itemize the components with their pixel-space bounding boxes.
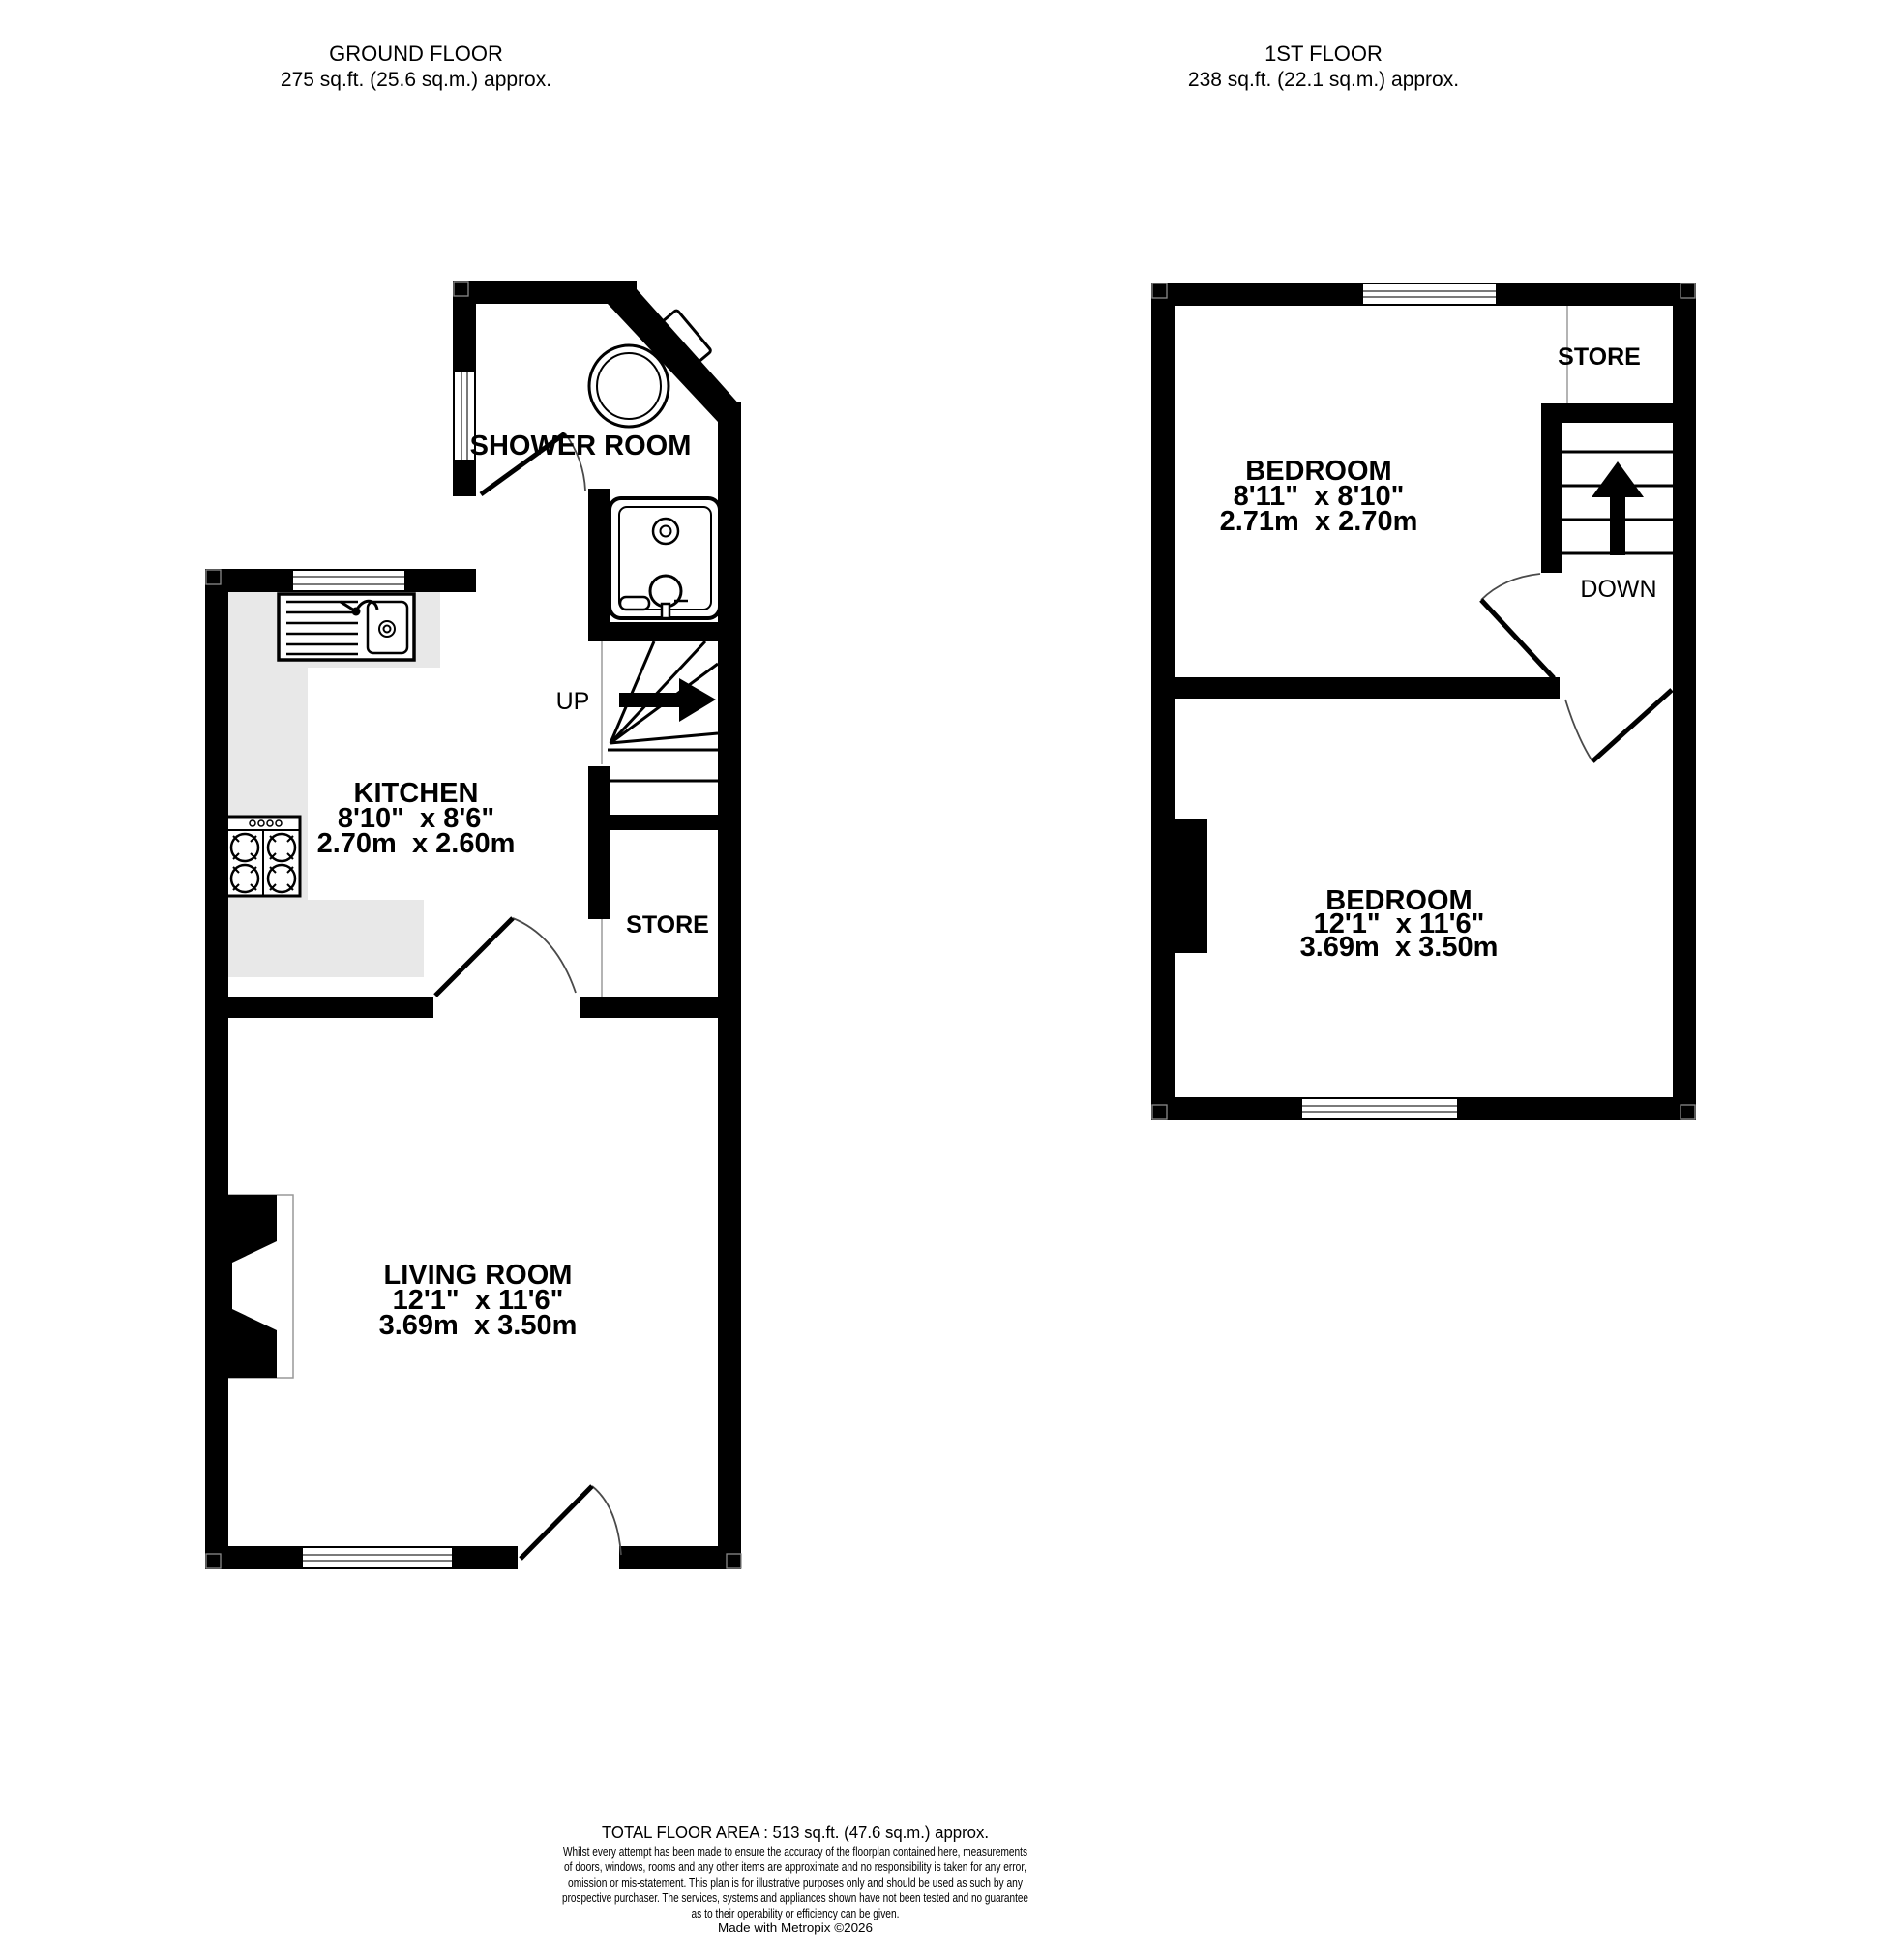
kitchen-living-door bbox=[435, 918, 576, 996]
disclaimer-line-2: of doors, windows, rooms and any other i… bbox=[564, 1860, 1026, 1874]
floorplan-canvas: GROUND FLOOR 275 sq.ft. (25.6 sq.m.) app… bbox=[0, 0, 1904, 1935]
first-floor-windows bbox=[1302, 284, 1496, 1118]
front-door bbox=[521, 1486, 621, 1559]
bedroom2-door bbox=[1565, 690, 1672, 761]
metropix-credit: Made with Metropix ©2026 bbox=[718, 1920, 873, 1935]
stairs-down-label: DOWN bbox=[1580, 576, 1656, 603]
shower-tray-icon bbox=[610, 498, 720, 618]
bedroom1-door bbox=[1481, 574, 1554, 678]
up-arrow-icon bbox=[619, 678, 716, 722]
living-room-size-metric: 3.69m x 3.50m bbox=[379, 1310, 578, 1341]
disclaimer-line-5: as to their operability or efficiency ca… bbox=[692, 1906, 900, 1920]
first-floor-title: 1ST FLOOR bbox=[1264, 42, 1383, 66]
living-room-window bbox=[303, 1548, 452, 1567]
ground-store-label: STORE bbox=[626, 911, 709, 938]
bedroom1-size-metric: 2.71m x 2.70m bbox=[1220, 506, 1418, 537]
bedroom2-chimney-breast bbox=[1175, 819, 1207, 953]
floorplan-page: GROUND FLOOR 275 sq.ft. (25.6 sq.m.) app… bbox=[0, 0, 1904, 1935]
first-floor-area: 238 sq.ft. (22.1 sq.m.) approx. bbox=[1188, 69, 1459, 91]
disclaimer-line-3: omission or mis-statement. This plan is … bbox=[568, 1875, 1023, 1890]
ground-floor-area: 275 sq.ft. (25.6 sq.m.) approx. bbox=[281, 69, 551, 91]
kitchen-size-metric: 2.70m x 2.60m bbox=[317, 828, 516, 859]
hob-icon bbox=[226, 817, 300, 896]
shower-room-label: SHOWER ROOM bbox=[470, 431, 692, 461]
kitchen-sink-icon bbox=[279, 594, 414, 660]
kitchen-window bbox=[293, 571, 404, 590]
footer: TOTAL FLOOR AREA : 513 sq.ft. (47.6 sq.m… bbox=[562, 1822, 1028, 1935]
staircase-up bbox=[608, 641, 718, 781]
down-arrow-icon bbox=[1592, 461, 1644, 555]
disclaimer-line-1: Whilst every attempt has been made to en… bbox=[563, 1844, 1027, 1859]
first-floor-walls bbox=[1151, 283, 1696, 1120]
stairs-up-label: UP bbox=[556, 688, 590, 715]
disclaimer-line-4: prospective purchaser. The services, sys… bbox=[562, 1890, 1028, 1905]
ground-floor-plan: GROUND FLOOR 275 sq.ft. (25.6 sq.m.) app… bbox=[205, 42, 741, 1569]
staircase-down bbox=[1562, 452, 1673, 555]
bedroom1-window bbox=[1363, 284, 1496, 304]
bedroom2-size-metric: 3.69m x 3.50m bbox=[1300, 932, 1499, 963]
first-store-label: STORE bbox=[1558, 343, 1641, 371]
bedroom2-window bbox=[1302, 1099, 1457, 1118]
ground-floor-title: GROUND FLOOR bbox=[329, 42, 503, 66]
fireplace-chimney-breast bbox=[228, 1195, 293, 1378]
total-floor-area: TOTAL FLOOR AREA : 513 sq.ft. (47.6 sq.m… bbox=[602, 1822, 989, 1842]
first-floor-plan: 1ST FLOOR 238 sq.ft. (22.1 sq.m.) approx… bbox=[1151, 42, 1696, 1120]
